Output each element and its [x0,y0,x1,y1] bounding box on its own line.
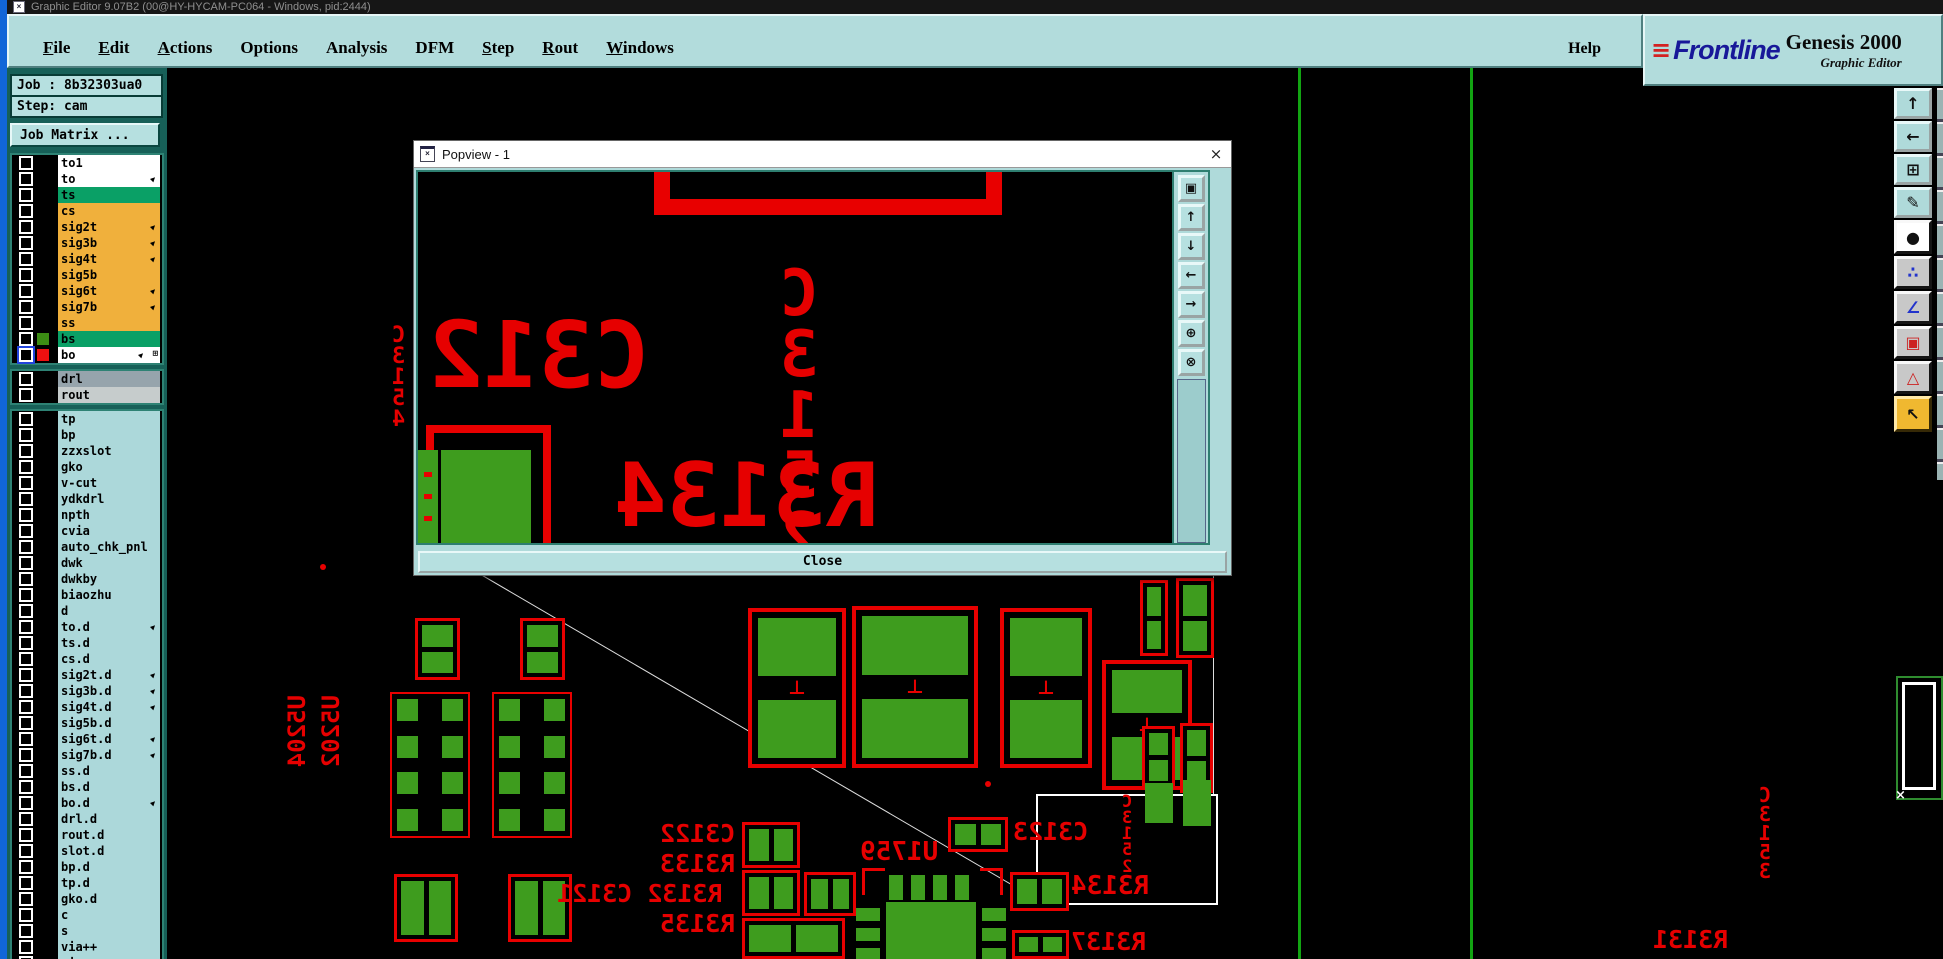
popview-body: C312 C 3 1 5 2 R3134 ▣↑↓←→⊕⊗ [414,168,1231,551]
layer-checkbox[interactable] [19,156,33,170]
layer-name: rout [58,387,160,403]
layer-checkbox[interactable] [19,652,33,666]
layer-color-swatch [37,877,49,889]
layer-checkbox[interactable] [19,828,33,842]
layer-row-npth[interactable]: npth [12,507,162,523]
layer-row-d[interactable]: d [12,603,162,619]
menu-file[interactable]: File [31,38,82,58]
window-title: Graphic Editor 9.07B2 (00@HY-HYCAM-PC064… [31,1,371,13]
ic-pin-pad [911,875,925,900]
silkscreen-dot [985,781,991,787]
detach-view-icon[interactable]: ▣ [1178,175,1205,202]
pan-left-button[interactable]: ← [1894,121,1932,152]
layer-arrow-icon: ▶ [149,702,158,711]
layer-row-to[interactable]: to▶ [12,171,162,187]
layer-row-tp[interactable]: tp [12,411,162,427]
layer-color-swatch [37,221,49,233]
layer-color-swatch [37,389,49,401]
layer-color-swatch [37,669,49,681]
layer-color-swatch [37,589,49,601]
component-pads [948,817,1008,852]
smd-pad [749,925,791,952]
layer-color-swatch [37,285,49,297]
layer-row-drl[interactable]: drl [12,371,162,387]
layer-row-to1[interactable]: to1 [12,155,162,171]
smd-pad [1149,733,1168,755]
component-pads [1176,578,1214,658]
popview-window-icon: × [420,146,435,162]
layer-row-slot.d[interactable]: slot.d [12,843,162,859]
ic-pin-column [544,699,565,831]
layer-checkbox[interactable] [19,460,33,474]
layer-checkbox[interactable] [19,524,33,538]
capacitor-footprint: ⊥ [852,606,978,768]
layer-checkbox[interactable] [19,204,33,218]
silkscreen-label: R3133 [660,852,735,876]
layer-name: drl [58,371,160,387]
brand-panel: ≡ Frontline Genesis 2000 Graphic Editor [1643,14,1943,86]
component-pads [394,874,458,942]
layer-name: bp.d [58,859,160,875]
layer-checkbox[interactable] [19,476,33,490]
layer-checkbox[interactable] [19,844,33,858]
menu-actions[interactable]: Actions [146,38,225,58]
layer-checkbox[interactable] [19,540,33,554]
layer-row-sig2t[interactable]: sig2t▶ [12,219,162,235]
selection-rect [1902,682,1936,790]
layer-row-via++[interactable]: via++ [12,939,162,955]
layer-row-bo[interactable]: bo▶⊞ [12,347,162,363]
silkscreen-label: C3122 [660,822,735,846]
silkscreen-bracket [862,868,885,895]
pointer-button[interactable]: ↖ [1894,396,1932,432]
layer-name: sig6t▶ [58,283,160,299]
layer-checkbox[interactable] [19,236,33,250]
zoom-fit-button[interactable]: ⊞ [1894,154,1932,185]
layer-checkbox[interactable] [19,252,33,266]
layer-checkbox[interactable] [19,492,33,506]
layer-arrow-icon: ▶ [149,686,158,695]
layer-section: to1to▶tscssig2t▶sig3b▶sig4t▶sig5bsig6t▶s… [10,153,164,365]
ic-pin-pad [397,736,418,758]
pcb-canvas[interactable]: × ⊥⊥⊥⊥C 3 1 5 4U5204U5202C3122R3133R3132… [167,68,1943,959]
layer-checkbox[interactable] [19,716,33,730]
layer-row-via+++[interactable]: via+++ [12,955,162,959]
netlist-button[interactable]: ∴ [1894,256,1932,289]
menu-windows[interactable]: Windows [594,38,686,58]
component-pads [520,618,565,680]
layer-row-dwkby[interactable]: dwkby [12,571,162,587]
menu-help[interactable]: Help [1556,40,1613,58]
layer-row-bo.d[interactable]: bo.d▶ [12,795,162,811]
smd-pad [1147,587,1161,616]
pan-down-icon[interactable]: ↓ [1178,233,1205,260]
pan-up-button[interactable]: ↑ [1894,88,1932,119]
ic-pin-pad [499,736,520,758]
setup-button[interactable]: ✎ [1894,187,1932,218]
layer-checkbox[interactable] [19,796,33,810]
layer-color-swatch [37,909,49,921]
menu-edit[interactable]: Edit [86,38,141,58]
menu-step[interactable]: Step [470,38,526,58]
layer-checkbox[interactable] [19,780,33,794]
layer-row-s[interactable]: s [12,923,162,939]
layer-name: bo▶⊞ [58,347,160,363]
layer-color-swatch [37,301,49,313]
layer-row-sig3b.d[interactable]: sig3b.d▶ [12,683,162,699]
layer-name: ss [58,315,160,331]
layer-row-c[interactable]: c [12,907,162,923]
layer-row-gko.d[interactable]: gko.d [12,891,162,907]
layer-color-swatch [37,925,49,937]
silkscreen-label: U5204 [286,695,309,767]
layer-checkbox[interactable] [19,428,33,442]
zoom-in-icon[interactable]: ⊕ [1178,320,1205,347]
layer-row-sig4t.d[interactable]: sig4t.d▶ [12,699,162,715]
layer-row-bs.d[interactable]: bs.d [12,779,162,795]
layer-checkbox[interactable] [19,892,33,906]
layer-name: sig3b.d▶ [58,683,160,699]
silkscreen-bracket [654,199,1002,215]
smd-pad [1043,937,1062,952]
layer-row-sig6t.d[interactable]: sig6t.d▶ [12,731,162,747]
silkscreen-label: R3137 [1071,930,1146,954]
layer-row-bp.d[interactable]: bp.d [12,859,162,875]
layer-name: sig4t▶ [58,251,160,267]
ic-pin-pad [856,908,880,921]
layer-row-bp[interactable]: bp [12,427,162,443]
menu-options[interactable]: Options [228,38,310,58]
layer-row-ts.d[interactable]: ts.d [12,635,162,651]
smd-pad [981,824,1002,845]
ic-footprint [390,692,470,838]
silkscreen-dot [320,564,326,570]
layer-color-swatch [37,941,49,953]
layer-color-swatch [37,829,49,841]
layer-row-sig7b[interactable]: sig7b▶ [12,299,162,315]
layer-color-swatch [37,733,49,745]
layer-checkbox[interactable] [19,876,33,890]
silkscreen-label: R3135 [660,912,735,936]
menu-dfm[interactable]: DFM [403,38,466,58]
layer-color-swatch [37,413,49,425]
ic-footprint [492,692,572,838]
layer-row-rout.d[interactable]: rout.d [12,827,162,843]
layer-color-swatch [37,605,49,617]
popview-close-x-button[interactable]: × [1207,147,1225,162]
layer-color-swatch [37,349,49,361]
layer-row-sig4t[interactable]: sig4t▶ [12,251,162,267]
smd-pad [401,881,424,935]
smd-pad [796,925,838,952]
layer-checkbox[interactable] [19,556,33,570]
layer-color-swatch [37,813,49,825]
ic-pin-pad [544,699,565,721]
layer-color-swatch [37,573,49,585]
component-pads [415,618,460,680]
layer-checkbox[interactable] [19,764,33,778]
sidebar: Job : 8b32303ua0 Step: cam Job Matrix ..… [7,68,167,959]
ic-pin-pad [442,736,463,758]
layer-row-cvia[interactable]: cvia [12,523,162,539]
ic-pin-pad [397,772,418,794]
layer-name: dwkby [58,571,160,587]
layer-color-swatch [37,797,49,809]
smd-pad [758,700,836,758]
zoom-marker-cross: × [1895,789,1906,802]
menu-analysis[interactable]: Analysis [314,38,399,58]
layer-checkbox[interactable] [19,924,33,938]
layer-color-swatch [37,685,49,697]
right-toolbar-second-column [1937,88,1943,480]
layer-color-swatch [37,157,49,169]
silkscreen-label: U1759 [860,840,938,865]
layer-color-swatch [37,205,49,217]
polarity-mark-icon: ⊥ [862,677,968,697]
ic-pin-pad [544,736,565,758]
app-icon: × [13,1,25,13]
layer-row-zzxslot[interactable]: zzxslot [12,443,162,459]
smd-pad [774,877,794,909]
window-left-border [0,0,7,959]
ic-pin-pad [442,699,463,721]
silkscreen-bracket [986,172,1002,215]
layer-checkbox[interactable] [19,508,33,522]
layer-arrow-icon: ▶ [137,350,146,359]
layer-checkbox[interactable] [19,444,33,458]
smd-pad [1149,760,1168,782]
layer-color-swatch [37,525,49,537]
layer-row-sig2t.d[interactable]: sig2t.d▶ [12,667,162,683]
copy-feature-button[interactable]: ▣ [1894,326,1932,359]
product-title-block: Genesis 2000 Graphic Editor [1786,30,1902,71]
layer-checkbox[interactable] [19,316,33,330]
frontline-speed-lines-icon: ≡ [1651,40,1671,60]
layer-color-swatch [37,445,49,457]
layer-row-biaozhu[interactable]: biaozhu [12,587,162,603]
layer-name: slot.d [58,843,160,859]
layer-arrow-icon: ▶ [149,222,158,231]
layer-checkbox[interactable] [19,620,33,634]
layer-row-sig5b[interactable]: sig5b [12,267,162,283]
layer-row-dwk[interactable]: dwk [12,555,162,571]
ic-pin-pad [397,699,418,721]
layer-checkbox[interactable] [19,668,33,682]
component-pads [1012,930,1069,959]
layer-color-swatch [37,717,49,729]
layer-name: ts.d [58,635,160,651]
popview-titlebar[interactable]: × Popview - 1 × [414,141,1231,168]
silkscreen-label: C 3 1 5 3 [1759,786,1771,881]
silkscreen-mark [424,516,432,521]
product-name: Genesis 2000 [1786,30,1902,55]
smd-pad [955,824,976,845]
layer-row-ss[interactable]: ss [12,315,162,331]
layer-checkbox[interactable] [19,172,33,186]
layer-row-ss.d[interactable]: ss.d [12,763,162,779]
layer-row-drl.d[interactable]: drl.d [12,811,162,827]
layer-row-ydkdrl[interactable]: ydkdrl [12,491,162,507]
layer-checkbox[interactable] [19,284,33,298]
smd-pad [1019,937,1038,952]
layer-checkbox[interactable] [19,908,33,922]
silkscreen-label-c312: C312 [428,312,650,399]
layer-row-auto_chk_pnl[interactable]: auto_chk_pnl [12,539,162,555]
layer-arrow-icon: ▶ [149,750,158,759]
smd-pad [749,829,769,861]
silkscreen-mark [424,472,432,477]
popview-title: Popview - 1 [442,147,510,162]
layer-checkbox[interactable] [19,604,33,618]
ic-pin-pad [397,809,418,831]
silkscreen-label: R3131 [1653,928,1728,952]
layer-checkbox[interactable] [19,700,33,714]
layer-color-swatch [37,237,49,249]
layer-color-swatch [37,333,49,345]
layer-name: bs [58,331,160,347]
layer-row-sig3b[interactable]: sig3b▶ [12,235,162,251]
layer-checkbox[interactable] [19,188,33,202]
smd-pad [862,699,968,758]
job-matrix-button[interactable]: Job Matrix ... [10,123,160,147]
layer-row-bs[interactable]: bs [12,331,162,347]
layer-checkbox[interactable] [19,940,33,954]
polarity-mark-icon: ⊥ [1010,678,1082,698]
layer-checkbox[interactable] [19,332,33,346]
popview-window: × Popview - 1 × C312 C 3 1 5 2 R3134 ▣↑↓… [413,140,1232,576]
popview-nav-column: ▣↑↓←→⊕⊗ [1174,170,1210,545]
smd-pad [422,652,453,674]
layer-color-swatch [37,493,49,505]
component-pads [1010,872,1069,911]
polarity-mark-icon: ⊥ [758,678,836,698]
layer-name: tp [58,411,160,427]
layer-row-to.d[interactable]: to.d▶ [12,619,162,635]
layer-checkbox[interactable] [19,572,33,586]
menu-rout[interactable]: Rout [530,38,590,58]
layer-name: via++ [58,939,160,955]
layer-color-swatch [37,701,49,713]
zoom-out-icon[interactable]: ⊗ [1178,349,1205,376]
right-edge-view-box: × [1896,676,1943,800]
pan-left-icon[interactable]: ← [1178,262,1205,289]
layer-row-cs[interactable]: cs [12,203,162,219]
layer-checkbox[interactable] [19,300,33,314]
ic-pin-pad [499,809,520,831]
ic-pin-pad [442,772,463,794]
layer-checkbox[interactable] [19,348,33,362]
layer-color-swatch [37,893,49,905]
layer-checkbox[interactable] [19,412,33,426]
layer-name: sig6t.d▶ [58,731,160,747]
layer-name: biaozhu [58,587,160,603]
popview-scrollbar[interactable] [1177,379,1206,543]
popview-content[interactable]: C312 C 3 1 5 2 R3134 [416,170,1174,545]
layer-checkbox[interactable] [19,684,33,698]
layer-checkbox[interactable] [19,588,33,602]
layer-arrow-icon: ▶ [149,286,158,295]
ic-pin-pad [955,875,969,900]
ic-pin-pad [442,809,463,831]
drc-button[interactable]: △ [1894,361,1932,394]
pan-up-icon[interactable]: ↑ [1178,204,1205,231]
frontline-logo: Frontline [1673,35,1780,66]
smd-pad [422,625,453,647]
panel-border-line [1470,68,1473,959]
component-pads [742,870,800,916]
popview-close-button[interactable]: Close [418,551,1227,573]
capacitor-footprint: ⊥ [748,608,846,768]
layer-row-cs.d[interactable]: cs.d [12,651,162,667]
layer-name: c [58,907,160,923]
layer-color-swatch [37,637,49,649]
silkscreen-label: C3123 [1013,820,1088,844]
smd-pad [749,877,769,909]
layer-arrow-icon: ▶ [149,302,158,311]
silkscreen-label: C 3 1 5 4 [392,326,405,430]
layer-arrow-icon: ▶ [149,174,158,183]
layer-name: to.d▶ [58,619,160,635]
layer-row-sig7b.d[interactable]: sig7b.d▶ [12,747,162,763]
smd-pad [1183,621,1207,652]
window-titlebar: × Graphic Editor 9.07B2 (00@HY-HYCAM-PC0… [7,0,1943,14]
layer-checkbox[interactable] [19,268,33,282]
layer-row-tp.d[interactable]: tp.d [12,875,162,891]
smd-pad [1187,730,1206,756]
layer-checkbox[interactable] [19,812,33,826]
layer-name: s [58,923,160,939]
layer-row-ts[interactable]: ts [12,187,162,203]
layer-checkbox[interactable] [19,732,33,746]
layer-row-gko[interactable]: gko [12,459,162,475]
pan-right-icon[interactable]: → [1178,291,1205,318]
layer-row-rout[interactable]: rout [12,387,162,403]
layer-checkbox[interactable] [19,372,33,386]
layer-color-swatch [37,173,49,185]
capacitor-footprint: ⊥ [1000,608,1092,768]
menubar: FileEditActionsOptionsAnalysisDFMStepRou… [7,14,1643,68]
layer-row-sig6t[interactable]: sig6t▶ [12,283,162,299]
smd-pad [527,625,558,647]
smd-pad [1042,879,1062,904]
right-toolbar: ↑←⊞✎●∴∠▣△↖ [1894,88,1934,434]
smd-pad [527,652,558,674]
ic-pin-pad [982,948,1006,959]
measure-angle-button[interactable]: ∠ [1894,291,1932,324]
layer-name: ss.d [58,763,160,779]
layer-checkbox[interactable] [19,636,33,650]
layer-checkbox[interactable] [19,748,33,762]
layer-row-v-cut[interactable]: v-cut [12,475,162,491]
ic-body-pad [886,902,976,959]
layer-name: sig5b.d [58,715,160,731]
layer-color-swatch [37,861,49,873]
layer-name: sig2t▶ [58,219,160,235]
layer-checkbox[interactable] [19,220,33,234]
step-label: Step: cam [12,97,161,116]
layer-checkbox[interactable] [19,860,33,874]
ic-pin-pad [889,875,903,900]
layer-row-sig5b.d[interactable]: sig5b.d [12,715,162,731]
layer-color-swatch [37,765,49,777]
smd-pad [1017,879,1037,904]
ic-pin-pad [982,908,1006,921]
layer-color-swatch [37,749,49,761]
layer-name: auto_chk_pnl [58,539,160,555]
select-feature-button[interactable]: ● [1894,220,1932,254]
layer-checkbox[interactable] [19,388,33,402]
component-pads [1140,580,1168,656]
